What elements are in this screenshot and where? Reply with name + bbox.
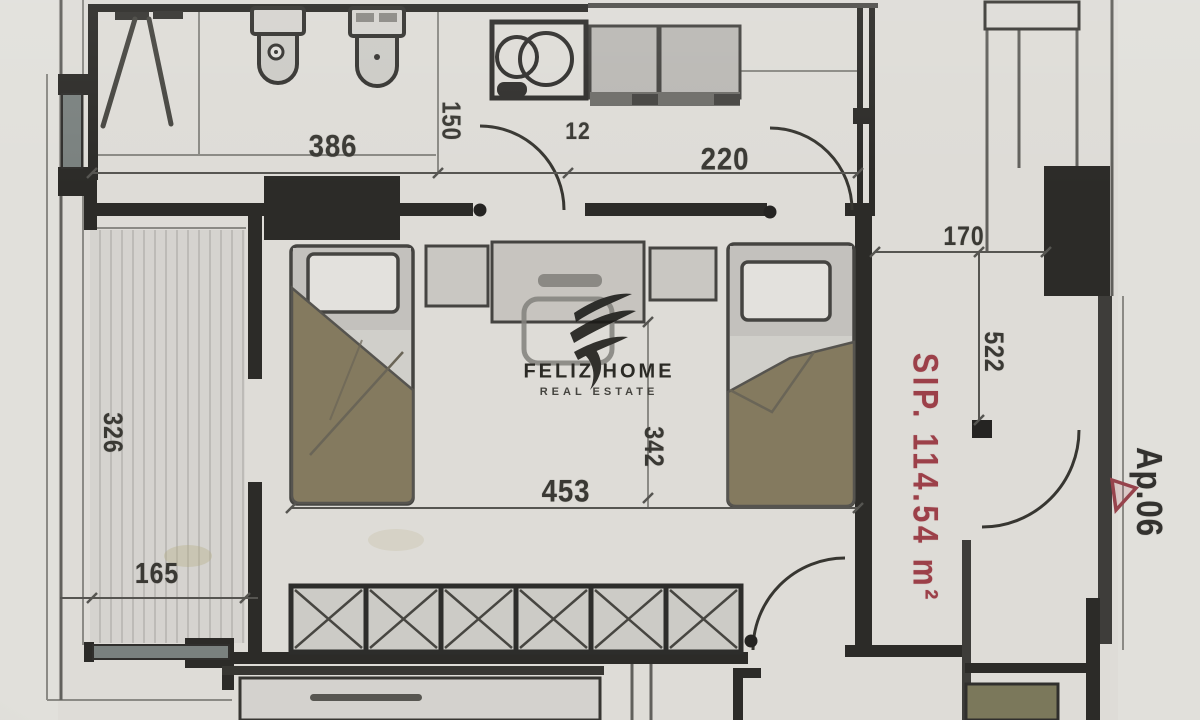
dim-hall-length: 522 xyxy=(978,331,1009,372)
area-label: SIP. 114.54 m² xyxy=(905,353,945,603)
pillow xyxy=(742,262,830,320)
dresser xyxy=(492,242,644,322)
toilet-icon xyxy=(350,8,404,86)
dim-hall-width: 170 xyxy=(943,222,984,253)
kitchen-counter xyxy=(590,26,740,106)
shaft-outline xyxy=(985,2,1079,29)
bed-left xyxy=(291,246,413,504)
bidet-icon xyxy=(252,8,304,83)
door-hall xyxy=(982,430,1079,527)
door-kitchen xyxy=(770,128,852,210)
pillow xyxy=(308,254,398,312)
wardrobe xyxy=(291,586,741,652)
dim-bedroom-width: 453 xyxy=(542,474,591,510)
dim-bedroom-length: 342 xyxy=(638,426,669,467)
nightstand-right xyxy=(650,248,716,300)
service-door xyxy=(966,684,1058,720)
window-left xyxy=(62,94,82,168)
watermark-tagline: REAL ESTATE xyxy=(540,386,659,398)
door-bathroom xyxy=(480,126,564,210)
dim-door-gap: 12 xyxy=(565,117,590,146)
column-block xyxy=(1044,166,1110,296)
drawer-unit xyxy=(240,678,600,720)
apartment-label: Ap.06 xyxy=(1127,447,1168,537)
shower-icon xyxy=(103,11,183,126)
dim-balcony-width: 165 xyxy=(135,558,179,591)
dim-kitchen-width: 220 xyxy=(701,142,750,178)
dim-bathroom-depth: 150 xyxy=(435,101,465,141)
wall-header-block xyxy=(264,176,400,240)
stove-icon xyxy=(492,22,586,98)
nightstand-left xyxy=(426,246,488,306)
dim-balcony-length: 326 xyxy=(97,412,128,453)
window-bottom xyxy=(93,645,229,659)
door-bedroom xyxy=(753,558,845,650)
dim-bathroom-width: 386 xyxy=(309,129,358,165)
watermark-brand: FELIZ HOME xyxy=(523,361,674,384)
floor-plan: 386 150 12 220 170 522 453 342 326 165 S… xyxy=(0,0,1200,720)
bed-right xyxy=(728,244,854,506)
